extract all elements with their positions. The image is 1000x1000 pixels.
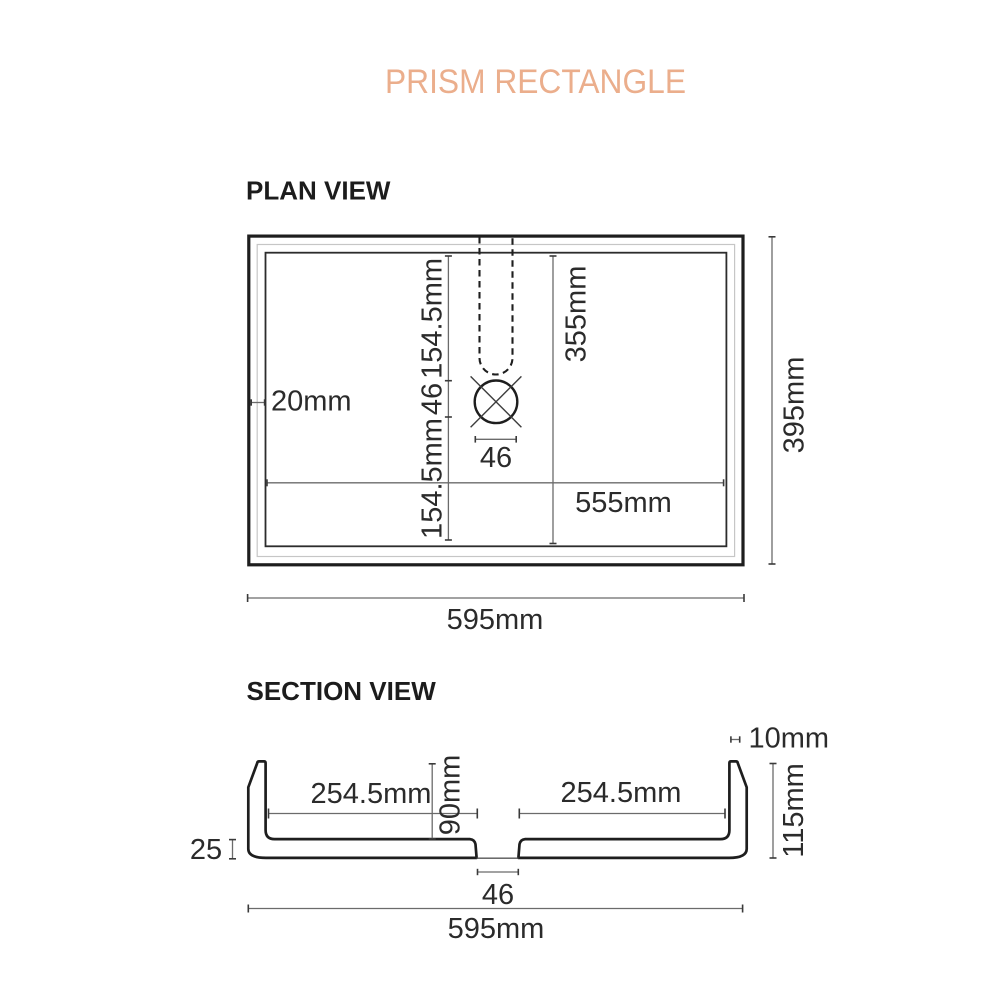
svg-text:25: 25	[190, 834, 222, 866]
svg-text:90mm: 90mm	[435, 755, 467, 836]
svg-text:PRISM RECTANGLE: PRISM RECTANGLE	[385, 63, 686, 101]
svg-text:595mm: 595mm	[447, 604, 544, 636]
svg-text:SECTION VIEW: SECTION VIEW	[247, 676, 437, 706]
svg-text:46: 46	[417, 383, 449, 415]
svg-text:115mm: 115mm	[778, 763, 810, 858]
svg-text:254.5mm: 254.5mm	[561, 777, 682, 809]
svg-text:46: 46	[482, 879, 514, 911]
svg-text:46: 46	[480, 442, 512, 474]
svg-text:10mm: 10mm	[749, 722, 830, 754]
svg-text:20mm: 20mm	[271, 386, 352, 418]
svg-text:555mm: 555mm	[575, 487, 672, 519]
svg-text:PLAN VIEW: PLAN VIEW	[246, 176, 391, 206]
svg-text:595mm: 595mm	[448, 913, 545, 945]
svg-text:395mm: 395mm	[779, 357, 811, 454]
svg-text:355mm: 355mm	[561, 266, 593, 363]
svg-text:254.5mm: 254.5mm	[311, 778, 432, 810]
svg-text:154.5mm: 154.5mm	[417, 258, 449, 379]
svg-text:154.5mm: 154.5mm	[417, 418, 449, 539]
